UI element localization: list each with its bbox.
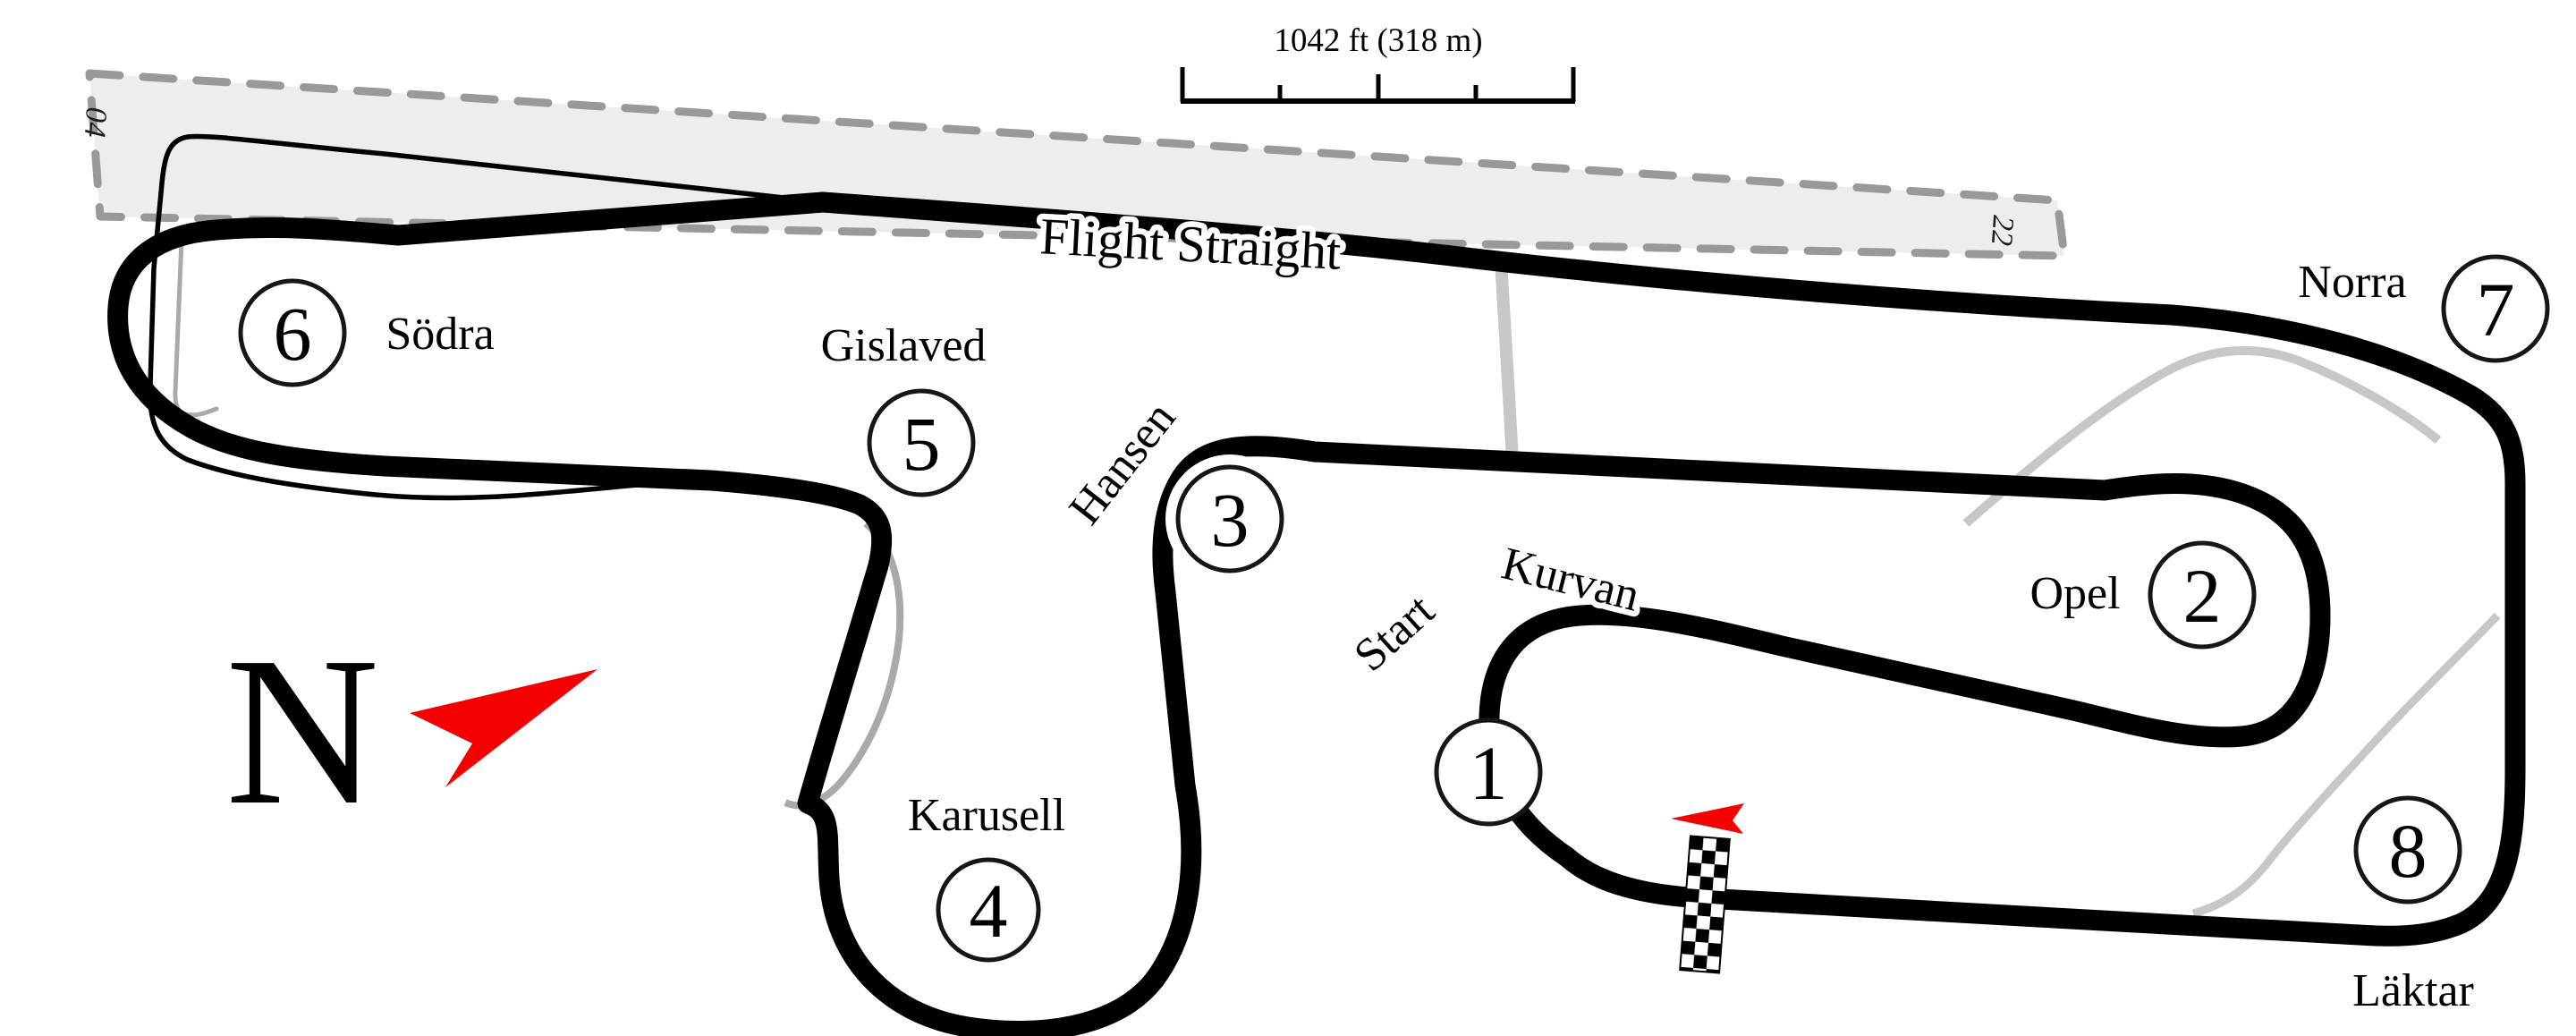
turn-8-label: Läktar	[2352, 965, 2474, 1016]
turn-3: Hansen 3	[1060, 393, 1294, 583]
north-letter: N	[225, 614, 379, 849]
pit-lane-line	[175, 240, 216, 415]
turn-1-number: 1	[1470, 730, 1508, 816]
turn-1-label-start: Start	[1344, 584, 1445, 681]
turn-5-number: 5	[902, 401, 941, 487]
north-arrow-icon	[410, 669, 597, 787]
turn-5-label: Gislaved	[821, 320, 987, 371]
turn-4: Karusell 4	[908, 790, 1065, 960]
turn-6-label: Södra	[386, 309, 494, 360]
turn-2-number: 2	[2183, 553, 2222, 639]
turn-2: Opel 2	[2029, 543, 2254, 647]
track-map: 04 22 N 1042 ft (318 m) Flight Straight …	[0, 0, 2576, 1036]
turn-8-number: 8	[2389, 808, 2428, 894]
scale-bar-ticks	[1182, 67, 1573, 102]
turn-7-number: 7	[2477, 267, 2515, 352]
service-road-runway-connector	[1501, 261, 1513, 460]
turn-2-label: Opel	[2029, 568, 2120, 619]
checkered-finish-line	[1680, 836, 1730, 973]
turn-7-label: Norra	[2298, 257, 2406, 308]
turn-6-number: 6	[274, 291, 312, 377]
runway-number-22: 22	[1985, 214, 2020, 246]
scale-bar: 1042 ft (318 m)	[1181, 22, 1575, 102]
runway-number-04: 04	[78, 106, 113, 138]
turn-3-number: 3	[1211, 477, 1250, 563]
turn-6: 6 Södra	[241, 281, 495, 385]
scale-label: 1042 ft (318 m)	[1274, 22, 1482, 59]
service-road-norra-access	[1966, 351, 2438, 523]
red-direction-flag-icon	[1671, 803, 1744, 834]
turn-4-number: 4	[970, 868, 1008, 954]
turn-5: Gislaved 5	[821, 320, 987, 495]
track-map-canvas: 04 22 N 1042 ft (318 m) Flight Straight …	[0, 0, 2576, 1036]
turn-4-label: Karusell	[908, 790, 1065, 841]
compass: N	[225, 614, 597, 849]
turn-8: 8 Läktar	[2352, 798, 2474, 1016]
